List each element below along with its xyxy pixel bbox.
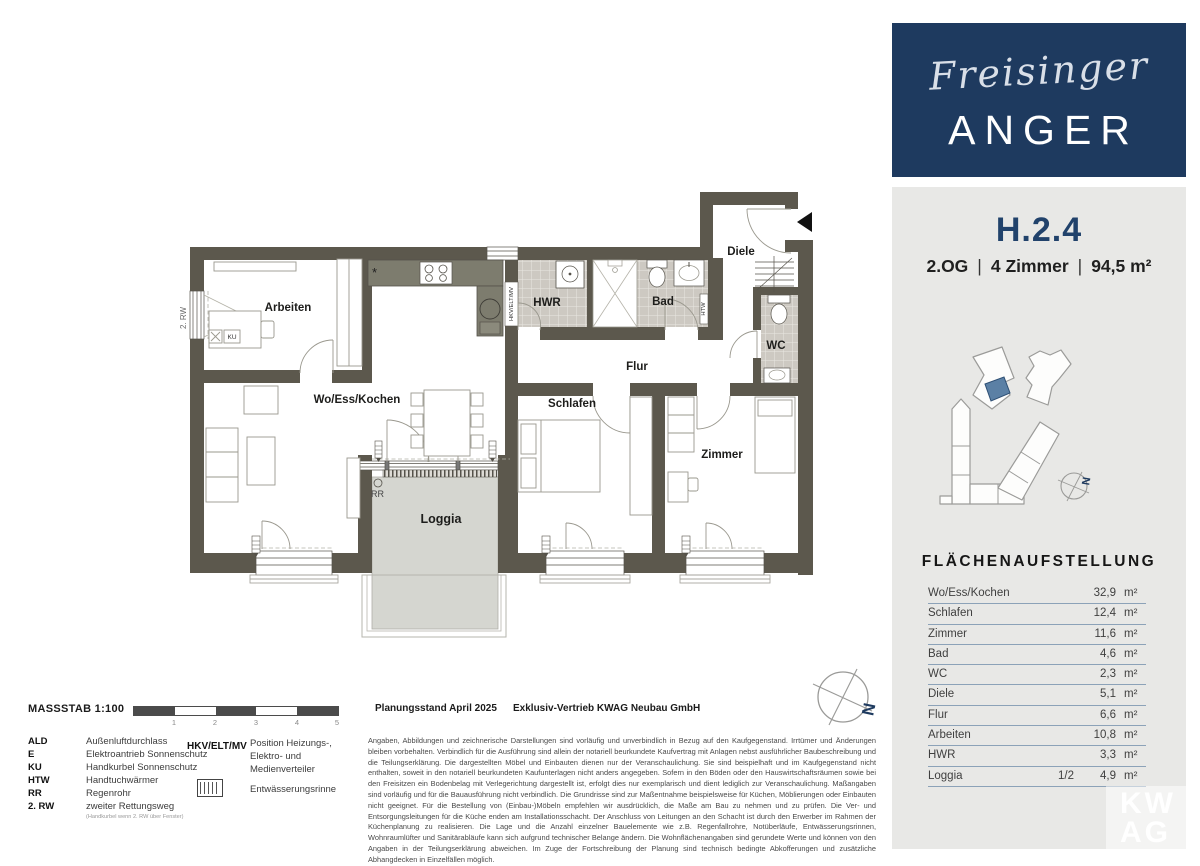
hkv-label: HKV/ELT/MV (509, 287, 515, 321)
building-outline (940, 496, 952, 504)
room-label-wohnen: Wo/Ess/Kochen (314, 394, 401, 406)
abbreviation-legend: ALDAußenluftdurchlass EElektroantrieb So… (28, 735, 207, 821)
room-label-arbeiten: Arbeiten (265, 302, 312, 314)
window-sills (250, 575, 770, 583)
brand-name: ANGER (892, 107, 1186, 154)
unit-floor: 2.OG (926, 256, 968, 276)
building-outline (952, 399, 970, 504)
site-plan: N (916, 319, 1154, 544)
room-label-hwr: HWR (533, 297, 561, 309)
legend-item: EElektroantrieb Sonnenschutz (28, 748, 207, 761)
small-chair (688, 478, 698, 491)
room-label-schlafen: Schlafen (548, 398, 596, 410)
pillow (521, 424, 536, 454)
htw-label: HTW (701, 302, 707, 316)
disclaimer-text: Angaben, Abbildungen und zeichnerische D… (368, 736, 876, 866)
sales-label: Exklusiv-Vertrieb KWAG Neubau GmbH (513, 703, 700, 714)
dining-table (424, 390, 470, 456)
unit-subtitle: 2.OG|4 Zimmer|94,5 m² (892, 256, 1186, 277)
chair (411, 414, 423, 427)
table-row: Loggia1/24,9m² (928, 767, 1146, 787)
desk-chair (261, 321, 274, 338)
sideboard (347, 458, 360, 518)
north-label: N (1079, 476, 1092, 486)
compass-icon: N (813, 669, 879, 725)
drainage-label: Entwässerungsrinne (250, 784, 336, 795)
hkv-legend-desc: Position Heizungs-, Elektro- und Medienv… (250, 737, 332, 776)
room-label-wc: WC (766, 340, 785, 352)
room-label-flur: Flur (626, 361, 648, 373)
pillow (521, 458, 536, 488)
legend-item: 2. RWzweiter Rettungsweg (28, 800, 207, 813)
legend-note: (Handkurbel wenn 2. RW über Fenster) (86, 813, 207, 821)
tv-cabinet (244, 386, 278, 414)
legend-item: KUHandkurbel Sonnenschutz (28, 761, 207, 774)
hkv-legend-abbr: HKV/ELT/MV (187, 741, 247, 752)
coat-rack-icon (755, 256, 794, 292)
area-table-title: FLÄCHENAUFSTELLUNG (892, 553, 1186, 571)
rr-label: RR (371, 489, 384, 499)
scale-ticks: 1 2 3 4 5 (133, 718, 339, 728)
small-desk (668, 472, 688, 502)
room-label-zimmer: Zimmer (701, 449, 743, 461)
table-row: Zimmer11,6m² (928, 625, 1146, 645)
table-row: WC2,3m² (928, 665, 1146, 685)
table-row: Flur6,6m² (928, 706, 1146, 726)
chair (411, 435, 423, 448)
building-outline (1026, 350, 1071, 405)
rw2-label: 2. RW (179, 307, 188, 330)
legend-item: HTWHandtuchwärmer (28, 774, 207, 787)
unit-area: 94,5 m² (1091, 256, 1151, 276)
closet (668, 397, 694, 452)
room-label-bad: Bad (652, 296, 674, 308)
kitchen-counter: * (368, 260, 518, 336)
table-row: Bad4,6m² (928, 645, 1146, 665)
drainage-channel-icon (197, 779, 223, 797)
sofa (206, 428, 238, 502)
floorplan-sheet: { "branding": {"script": "Freisinger", "… (0, 0, 1200, 849)
drainage-channel (383, 470, 497, 477)
table-row: Wo/Ess/Kochen32,9m² (928, 584, 1146, 604)
table-row: Schlafen12,4m² (928, 604, 1146, 624)
unit-id: H.2.4 (892, 211, 1186, 250)
wardrobe (337, 259, 362, 366)
room-label-loggia: Loggia (421, 512, 463, 526)
info-panel: H.2.4 2.OG|4 Zimmer|94,5 m² N FLÄCHENAUF… (892, 187, 1186, 849)
bedroom-wardrobe (630, 397, 652, 515)
wc-toilet-icon (768, 295, 790, 303)
chair (411, 393, 423, 406)
legend-item: ALDAußenluftdurchlass (28, 735, 207, 748)
area-table: Wo/Ess/Kochen32,9m² Schlafen12,4m² Zimme… (928, 584, 1146, 787)
kwag-watermark: KW AG (1106, 786, 1200, 849)
room-label-diele: Diele (727, 246, 755, 258)
shelf (214, 262, 296, 271)
planning-status: Planungsstand April 2025 (375, 703, 497, 714)
chair (471, 393, 483, 406)
brand-script: Freisinger (891, 41, 1187, 100)
dishwasher-icon: * (372, 265, 377, 280)
table-row: Arbeiten10,8m² (928, 726, 1146, 746)
siteplan-compass-icon: N (1058, 472, 1092, 501)
scale-label: MASSSTAB 1:100 (28, 703, 124, 715)
ku-label: KU (227, 334, 236, 341)
table-row: HWR3,3m² (928, 746, 1146, 766)
brand-logo-box: Freisinger ANGER (892, 23, 1186, 177)
legend-item: RRRegenrohr (28, 787, 207, 800)
coffee-table (247, 437, 275, 485)
chair (471, 435, 483, 448)
entrance-arrow-icon (797, 212, 812, 232)
pillow (758, 400, 792, 416)
building-outline (998, 422, 1059, 500)
chair (471, 414, 483, 427)
scale-bar (133, 706, 339, 716)
unit-rooms: 4 Zimmer (991, 256, 1069, 276)
table-row: Diele5,1m² (928, 685, 1146, 705)
